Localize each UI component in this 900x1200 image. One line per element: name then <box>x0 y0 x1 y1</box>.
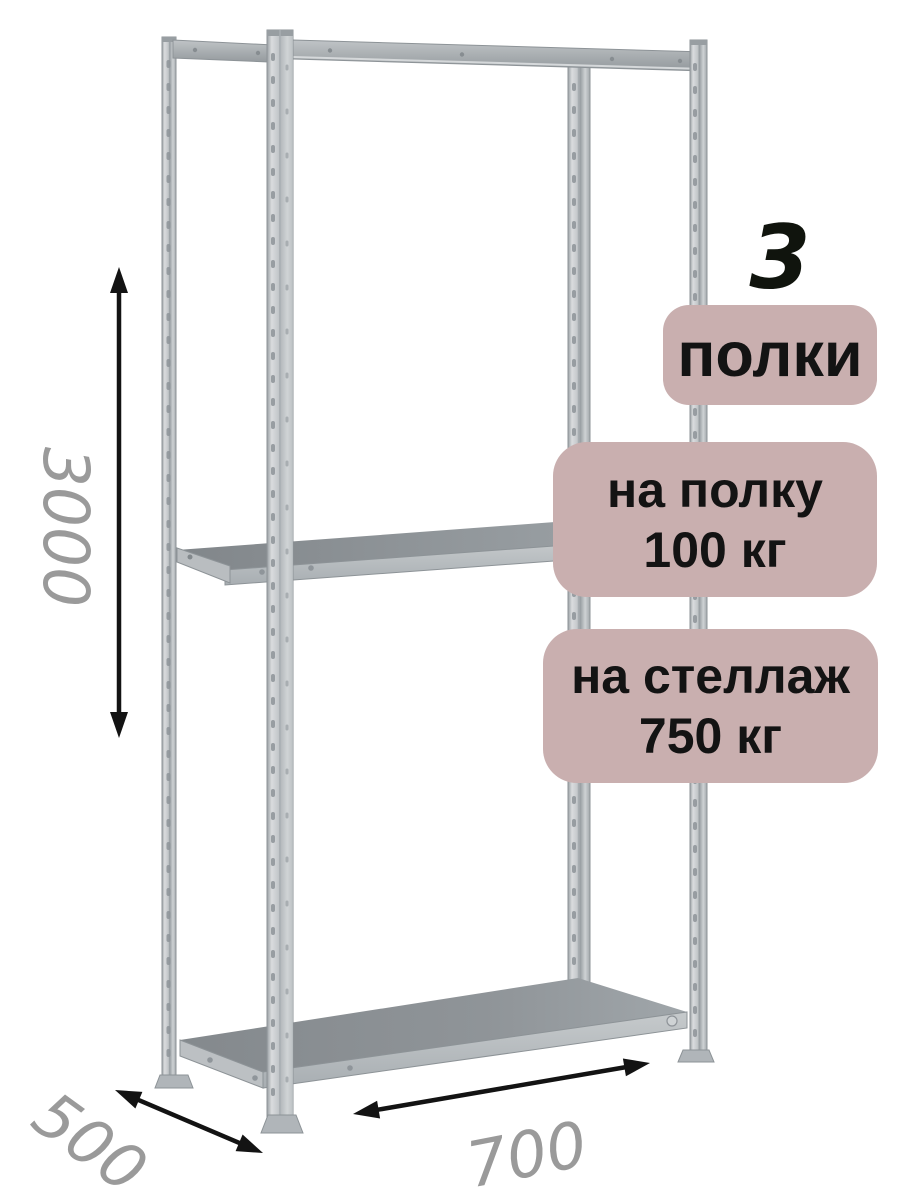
post-foot <box>678 1050 714 1062</box>
per-rack-load-value: 750 кг <box>543 706 878 766</box>
width-dimension-label: 700 <box>461 1108 593 1200</box>
post-foot <box>261 1115 303 1133</box>
rack-illustration: 3000 500 700 <box>0 0 900 1200</box>
height-arrow <box>110 267 128 738</box>
shelf-count-number: 3 <box>730 214 830 302</box>
per-shelf-load-value: 100 кг <box>553 520 877 580</box>
shelf-count-badge: полки <box>663 305 877 405</box>
per-rack-load-label: на стеллаж <box>543 646 878 706</box>
top-front-beam <box>293 40 705 71</box>
post-foot <box>155 1075 193 1088</box>
shelf-count-label: полки <box>677 320 862 390</box>
per-rack-load-badge: на стеллаж 750 кг <box>543 629 878 783</box>
post-front-left <box>261 30 303 1133</box>
per-shelf-load-badge: на полку 100 кг <box>553 442 877 597</box>
height-dimension-label: 3000 <box>29 447 102 607</box>
per-shelf-load-label: на полку <box>553 460 877 520</box>
product-image: 3000 500 700 3 полки на полку 100 кг на … <box>0 0 900 1200</box>
